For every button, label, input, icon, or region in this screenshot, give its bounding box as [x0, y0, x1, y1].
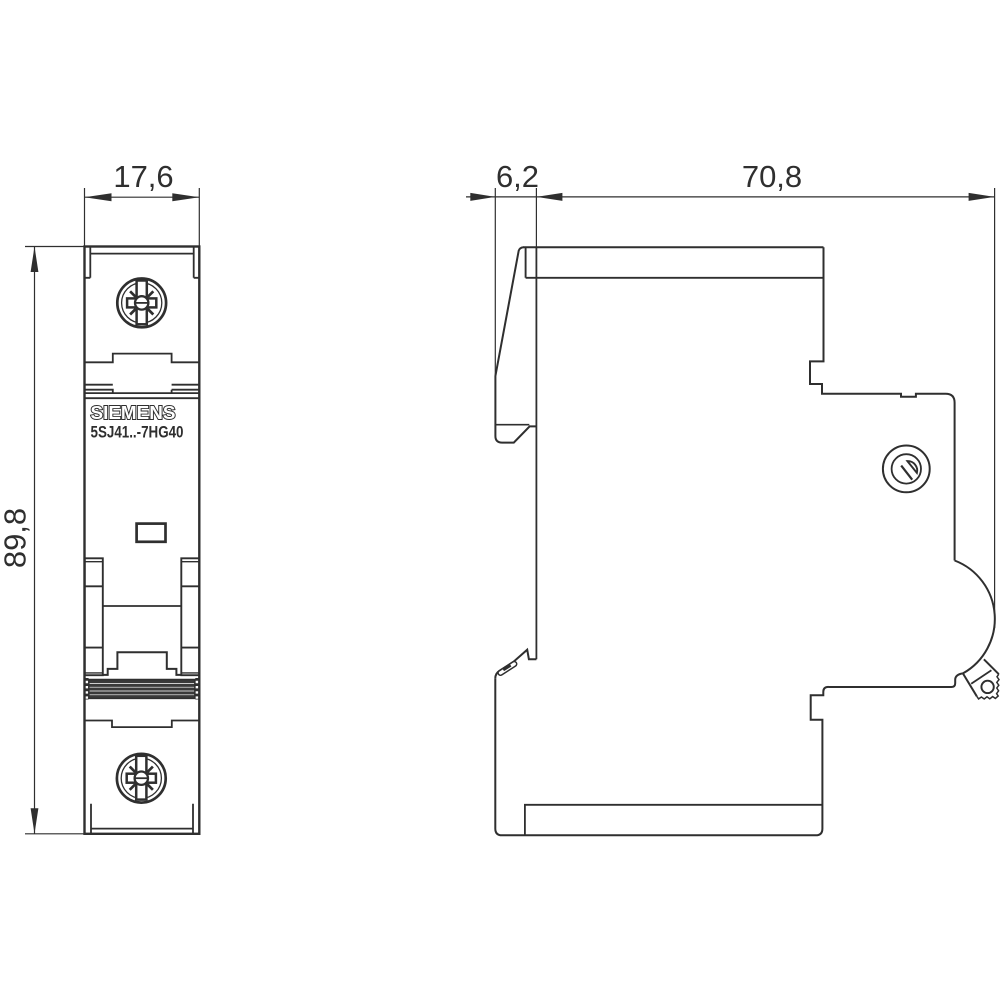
svg-text:70,8: 70,8: [742, 159, 802, 194]
svg-text:5SJ41..-7HG40: 5SJ41..-7HG40: [91, 424, 184, 442]
svg-text:89,8: 89,8: [0, 508, 33, 568]
svg-text:SIEMENS: SIEMENS: [91, 402, 176, 423]
svg-text:17,6: 17,6: [113, 159, 173, 194]
svg-text:6,2: 6,2: [496, 159, 539, 194]
